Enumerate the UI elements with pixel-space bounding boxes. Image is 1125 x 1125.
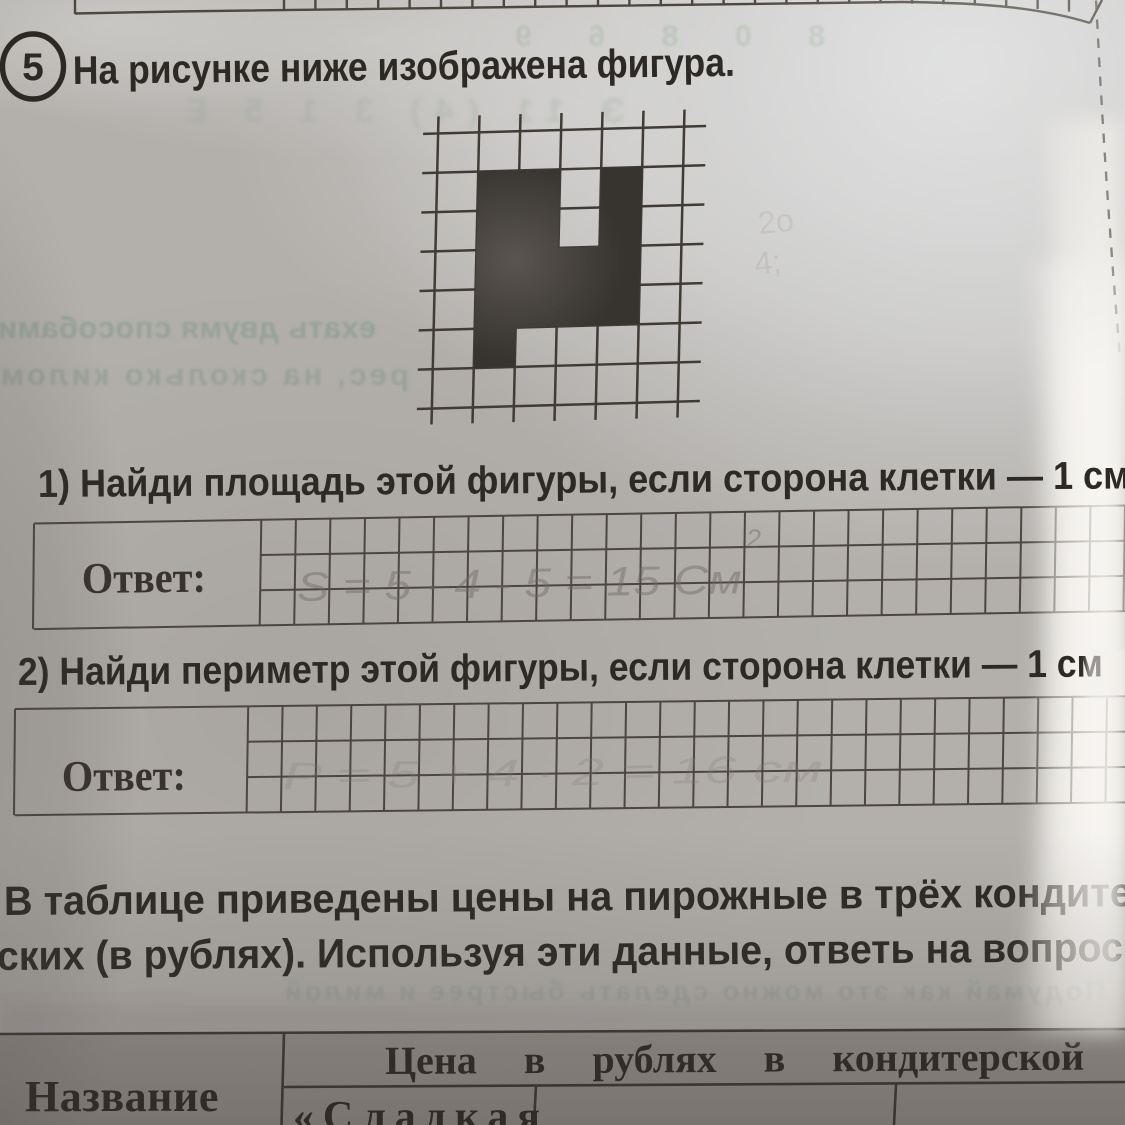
- svg-text:5: 5: [22, 46, 44, 89]
- svg-text:S = 5 · 4 - 5 = 15 См: S = 5 · 4 - 5 = 15 См: [296, 556, 742, 610]
- svg-text:На рисунке ниже изображена фиг: На рисунке ниже изображена фигура.: [73, 41, 735, 93]
- svg-text:2: 2: [745, 524, 762, 554]
- svg-text:2) Найди периметр этой фигуры,: 2) Найди периметр этой фигуры, если стор…: [18, 642, 1103, 694]
- svg-text:1) Найди площадь этой фигуры,: 1) Найди площадь этой фигуры, если сторо…: [38, 454, 1125, 506]
- svg-text:P = 5 + 4 · 2 = 16 см: P = 5 + 4 · 2 = 16 см: [283, 749, 824, 799]
